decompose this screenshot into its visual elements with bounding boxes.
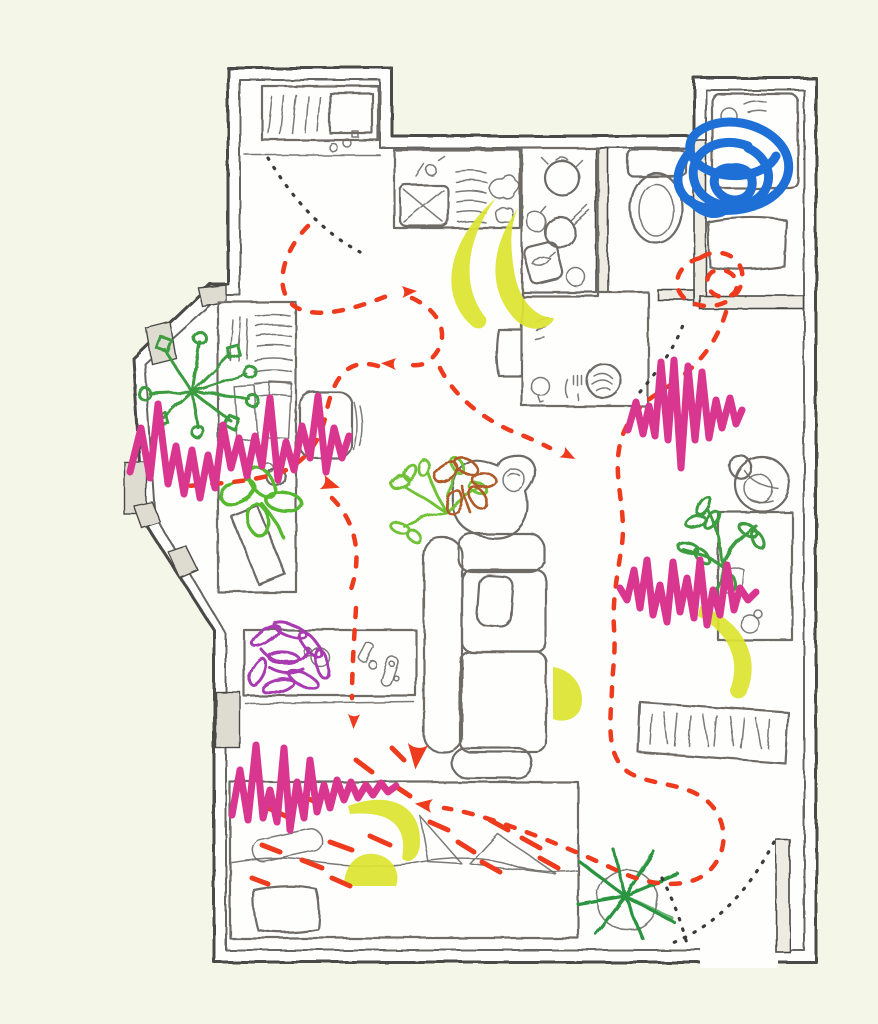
entry-door xyxy=(776,840,790,952)
floor-plan-sketch xyxy=(0,0,878,1024)
wall-stub-toilet xyxy=(658,290,694,300)
wall-bathroom-living xyxy=(700,296,804,309)
floor-plan-canvas xyxy=(0,0,878,1024)
entry-doorway xyxy=(700,934,778,968)
left-wall-window xyxy=(216,692,240,748)
